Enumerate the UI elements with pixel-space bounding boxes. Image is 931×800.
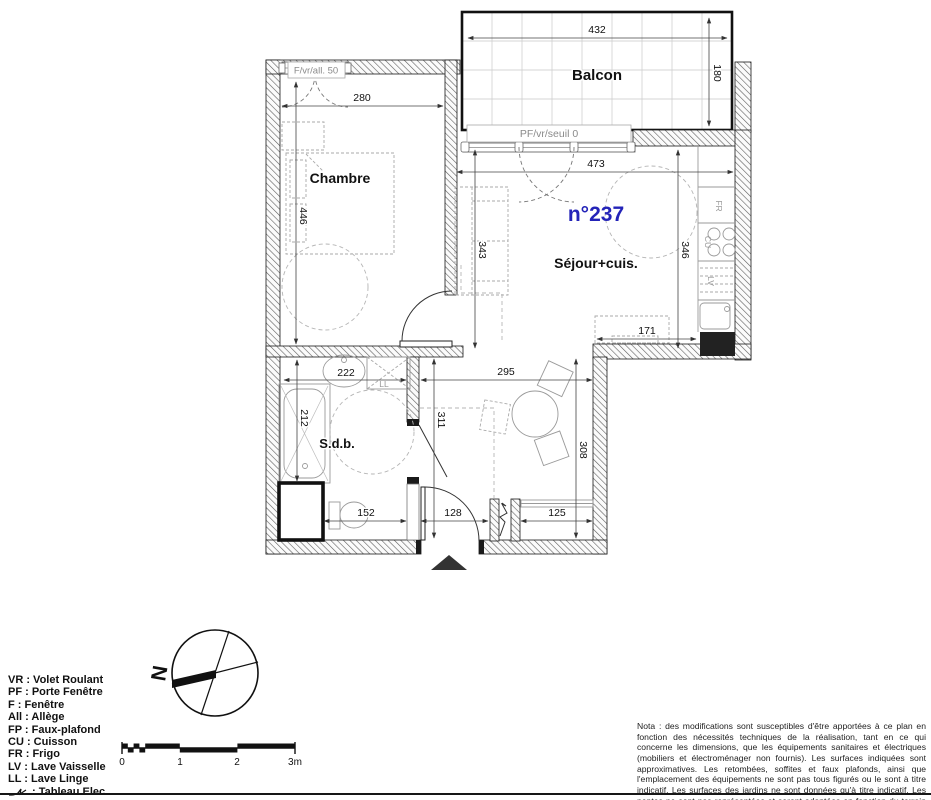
wall-chambre-sdb [266,346,463,357]
dim-hall-height: 311 [435,412,447,429]
compass-north-label: N [146,664,171,683]
dim-sejour-width: 473 [587,158,605,170]
floor-plan-sheet: F/vr/all. 50 PF/vr/seuil 0 [0,0,931,800]
compass-needle-icon [172,670,216,688]
dim-dining-height: 308 [577,441,589,459]
chambre-window-label: F/vr/all. 50 [294,66,338,77]
chair [480,400,511,434]
dim-closet: 125 [548,507,566,519]
compass: N [146,630,258,716]
legend-item: LV : Lave Vaisselle [8,761,108,773]
room-label-sdb: S.d.b. [319,436,354,451]
turning-circle [330,390,414,474]
chair [537,361,573,397]
nota-text: Nota : des modifications sont susceptibl… [637,721,926,800]
fridge-label: FR [714,200,724,211]
duvet-fold [306,154,323,171]
legend-item-elec: : Tableau Elec. [8,786,108,798]
scale-label-2: 2 [234,757,240,768]
bed [286,153,394,254]
wall-left [266,60,280,554]
wall-bottom-right [479,540,607,554]
wall-hall-right [593,357,607,554]
chambre-door-leaf [400,341,452,347]
wall-sdb-hall-upper [407,357,419,422]
wall-right [735,130,751,360]
window-hinge-icon [279,63,285,73]
dim-chambre-width: 280 [353,92,371,104]
ceiling-drop-line [461,265,502,340]
radiator [612,336,658,343]
toilet-tank [329,502,340,529]
dim-hall-width: 295 [497,366,515,378]
wall-bottom-left [266,540,421,554]
turning-circle [282,244,368,330]
hob-label: CU [703,236,713,248]
legend-item-elec-label: : Tableau Elec. [32,786,108,798]
unit-number: n°237 [568,203,624,226]
tub-drain-icon [303,464,308,469]
duct-column [407,484,419,540]
kitchen: FR CU LV [698,146,735,356]
window-mullion-icon [461,142,469,152]
sejour-window-label: PF/vr/seuil 0 [520,128,579,140]
niche-wall-left [490,499,499,541]
sink-drain-icon [725,307,730,312]
dining-table [512,391,558,437]
legend-item: LL : Lave Linge [8,773,108,785]
room-label-chambre: Chambre [310,170,371,186]
niche-wall-right [511,499,520,541]
legend: VR : Volet Roulant PF : Porte Fenêtre F … [8,674,108,798]
sejour-window: PF/vr/seuil 0 [461,125,635,202]
entry-door-leaf [421,487,425,540]
dishwasher-label: LV [706,276,716,286]
dresser [282,122,324,150]
electrical-panel-icon [500,503,507,536]
entry-jamb-right [479,540,484,554]
washing-machine-label: LL [379,379,389,389]
legend-item: CU : Cuisson [8,736,108,748]
chambre-window: F/vr/all. 50 [279,62,351,107]
storage-closet [279,483,323,540]
window-hinge-icon [345,63,351,73]
dim-bathtub: 212 [298,409,310,427]
hob-burner-icon [723,228,735,240]
scale-bar: 0 1 2 3m [119,742,302,768]
legend-item: FP : Faux-plafond [8,724,108,736]
dim-entry: 128 [444,507,462,519]
dim-desk: 171 [638,325,656,337]
floor-plan-drawing: F/vr/all. 50 PF/vr/seuil 0 [0,0,931,800]
sdb-door-jamb-bottom [407,477,419,484]
pillow [290,160,306,198]
room-label-sejour: Séjour+cuis. [554,255,638,271]
scale-label-1: 1 [177,757,183,768]
dim-chambre-depth: 446 [297,207,309,225]
dim-sdb-width: 222 [337,367,355,379]
legend-item: VR : Volet Roulant [8,674,108,686]
legend-item: All : Allège [8,711,108,723]
window-mullion-icon [627,142,635,152]
hob-burner-icon [723,244,735,256]
kitchen-end-panel [700,332,735,356]
legend-item: F : Fenêtre [8,699,108,711]
dim-balcon-depth: 180 [711,64,723,82]
chambre-furniture [282,122,394,330]
dim-balcon-width: 432 [588,24,606,36]
scale-label-3: 3m [288,757,302,768]
wall-chambre-sejour [445,60,457,295]
dim-sejour-left: 343 [476,241,488,259]
faucet-icon [342,358,347,363]
chambre-door-swing [402,291,452,341]
scale-label-0: 0 [119,757,125,768]
dim-sejour-right: 346 [679,241,691,259]
legend-item: FR : Frigo [8,748,108,760]
ceiling-drop-line [420,408,494,498]
dim-sdb-low: 152 [357,507,375,519]
room-label-balcon: Balcon [572,67,622,84]
entry-jamb-left [416,540,421,554]
legend-item: PF : Porte Fenêtre [8,686,108,698]
wall-sejour-top-right [633,130,737,146]
sdb-door-leaf [419,425,447,477]
sheet-bottom-rule [0,793,931,795]
wall-right-upper [735,62,751,132]
entrance-marker-icon [431,555,467,570]
